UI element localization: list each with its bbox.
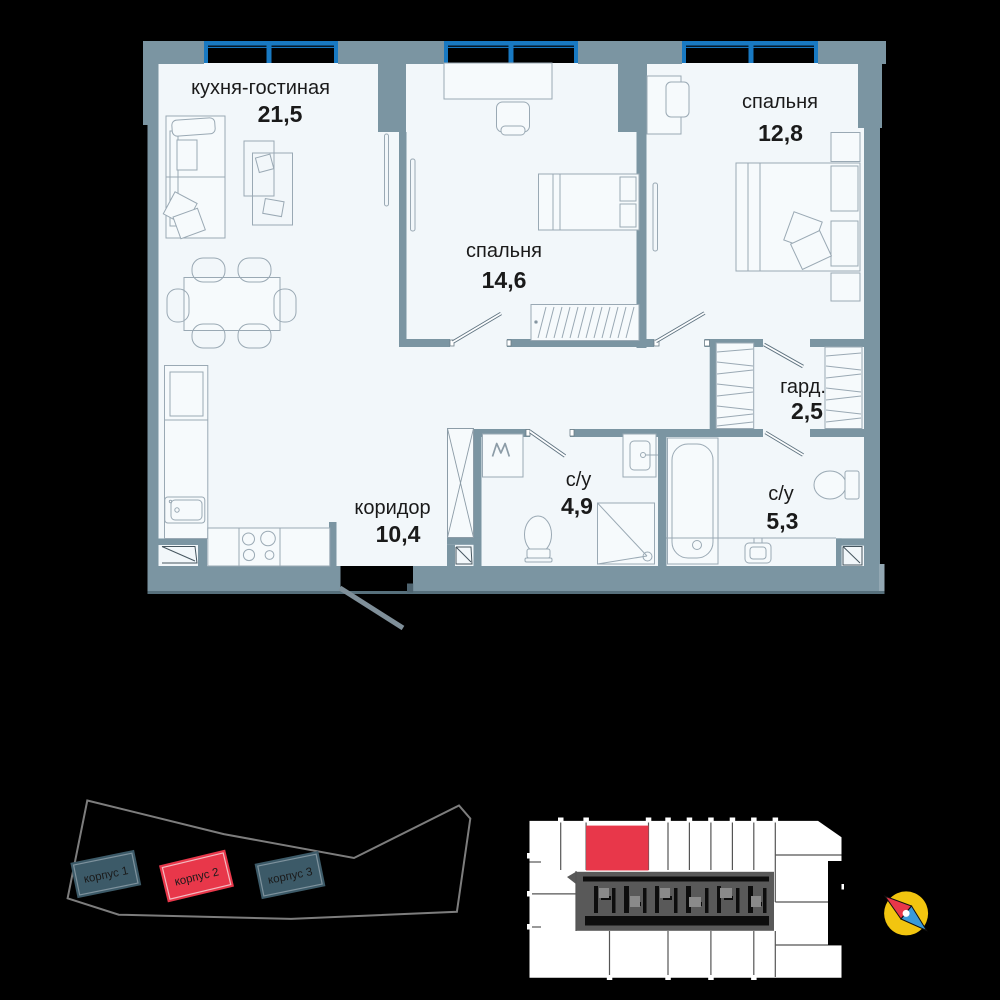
svg-text:12,8: 12,8	[758, 120, 803, 146]
svg-text:5,3: 5,3	[766, 508, 798, 534]
svg-text:спальня: спальня	[466, 240, 542, 262]
svg-text:гард.: гард.	[780, 376, 826, 398]
svg-text:4,9: 4,9	[561, 493, 593, 519]
svg-text:с/у: с/у	[566, 469, 592, 491]
svg-text:21,5: 21,5	[258, 101, 303, 127]
svg-text:14,6: 14,6	[482, 267, 527, 293]
svg-text:спальня: спальня	[742, 91, 818, 113]
svg-text:с/у: с/у	[768, 483, 794, 505]
svg-text:2,5: 2,5	[791, 398, 823, 424]
svg-text:10,4: 10,4	[376, 521, 421, 547]
svg-text:кухня-гостиная: кухня-гостиная	[191, 77, 330, 99]
svg-text:коридор: коридор	[354, 497, 430, 519]
